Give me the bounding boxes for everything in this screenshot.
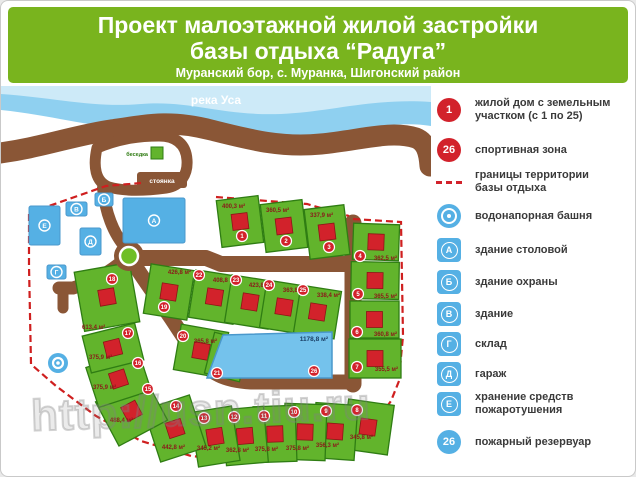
legend-label: здание столовой [475,244,568,257]
plot-number-18: 18 [109,277,116,283]
building-marker-icon: Е [435,390,463,418]
parking-label: стоянка [149,178,175,185]
house-2 [275,217,293,235]
plot-area-label-15: 488,4 м² [110,417,133,424]
plot-number-25: 25 [300,288,307,294]
plot-area-label-9: 356,3 м² [316,442,339,449]
house-8 [359,418,377,436]
legend-label: водонапорная башня [475,210,592,223]
house-10 [297,424,314,441]
plot-number-19: 19 [161,305,168,311]
legend-item-4: водонапорная башня [435,202,592,230]
house-5 [367,272,383,288]
legend-item-1: 1жилой дом с земельным участком (с 1 по … [435,96,610,124]
building-letter-Б: Б [102,197,107,204]
house-19 [160,283,178,301]
legend-item-9: Дгараж [435,360,506,388]
plot-number-20: 20 [180,334,187,340]
plot-area-label-6: 360,8 м² [374,331,397,338]
house-24 [275,298,293,316]
plot-area-label-14: 442,8 м² [162,444,185,451]
plot-area-label-12: 362,8 м² [226,447,249,454]
water-tower-icon [435,202,463,230]
dashed-boundary-icon [435,168,463,196]
plot-area-label-19: 426,8 м² [168,269,191,276]
plot-area-label-17: 375,9 м² [89,354,112,361]
gazebo [151,147,163,159]
page-subtitle: Муранский бор, с. Муранка, Шигонский рай… [8,66,628,80]
house-25 [308,303,326,321]
building-letter-Д: Д [88,239,93,246]
red-circle-symbol: 26 [437,138,461,162]
building-marker-icon: Б [435,268,463,296]
plot-area-label-8: 345,8 м² [350,434,373,441]
legend-item-2: 26спортивная зона [435,136,567,164]
blue-square-symbol: А [437,238,461,262]
legend-item-3: границы территории базы отдыха [435,168,589,196]
pond-badge-number: 26 [311,369,318,375]
house-22 [205,288,223,306]
plot-18 [74,263,140,332]
pond-area-label: 1178,8 м² [300,336,329,343]
page-title-line1: Проект малоэтажной жилой застройки [8,12,628,38]
plot-number-10: 10 [291,410,298,416]
plot-number-24: 24 [266,283,273,289]
map-legend: 1жилой дом с земельным участком (с 1 по … [431,86,636,477]
blue-square-symbol: Е [437,392,461,416]
blue-square-symbol: Г [437,332,461,356]
water-tower-dot [56,361,60,365]
building-marker-icon: А [435,236,463,264]
legend-item-10: Ехранение средств пожаротушения [435,390,573,418]
plot-area-label-25: 338,4 м² [317,292,340,299]
blue-square-symbol: Б [437,270,461,294]
plot-area-label-18: 613,4 м² [82,324,105,331]
plot-number-17: 17 [125,331,132,337]
house-4 [368,234,385,251]
plot-area-label-1: 400,3 м² [222,203,245,210]
roundabout-island [120,247,138,265]
plot-area-label-5: 365,5 м² [374,293,397,300]
legend-item-6: Бздание охраны [435,268,558,296]
legend-item-11: 26пожарный резервуар [435,428,591,456]
legend-label: границы территории базы отдыха [475,169,589,195]
building-marker-icon: Г [435,330,463,358]
plot-number-16: 16 [135,361,142,367]
legend-label: склад [475,338,507,351]
legend-item-8: Гсклад [435,330,507,358]
plot-number-22: 22 [196,273,203,279]
legend-item-7: Вздание [435,300,513,328]
legend-label: хранение средств пожаротушения [475,391,573,417]
plot-number-13: 13 [201,416,208,422]
road [137,258,353,264]
site-plan-map: 1178,8 м²261400,3 м²2360,5 м²3337,9 м²43… [1,86,431,477]
legend-label: здание [475,308,513,321]
building-marker-icon: Д [435,360,463,388]
plot-number-12: 12 [231,415,238,421]
house-3 [318,223,336,241]
house-1 [231,213,249,231]
red-marker-icon: 26 [435,136,463,164]
house-13 [206,427,224,445]
plot-area-label-16: 375,9 м² [93,384,116,391]
house-18 [98,288,117,307]
house-11 [267,426,284,443]
page-title-line2: базы отдыха “Радуга” [8,38,628,64]
plot-area-label-2: 360,5 м² [266,207,289,214]
road [1,124,430,166]
legend-label: гараж [475,368,506,381]
legend-label: пожарный резервуар [475,436,591,449]
house-12 [236,427,253,444]
gazebo-label: беседка [126,151,149,158]
plot-number-21: 21 [214,371,221,377]
legend-label: жилой дом с земельным участком (с 1 по 2… [475,97,610,123]
legend-label: здание охраны [475,276,558,289]
plot-area-label-11: 375,8 м² [255,446,278,453]
building-marker-icon: В [435,300,463,328]
legend-label: спортивная зона [475,144,567,157]
building-letter-В: В [74,206,79,213]
poster: Проект малоэтажной жилой застройки базы … [0,0,636,477]
plot-number-15: 15 [145,387,152,393]
red-circle-symbol: 1 [437,98,461,122]
building-letter-Е: Е [42,223,47,230]
plot-number-14: 14 [173,404,180,410]
plot-area-label-13: 345,2 м² [197,445,220,452]
plot-area-label-7: 355,5 м² [375,366,398,373]
river-label: река Уса [191,93,242,107]
legend-item-5: Аздание столовой [435,236,568,264]
plot-number-11: 11 [261,414,268,420]
house-23 [241,293,259,311]
plot-number-23: 23 [233,278,240,284]
blue-square-symbol: Д [437,362,461,386]
blue-square-symbol: В [437,302,461,326]
plot-area-label-4: 362,5 м² [374,255,397,262]
plot-area-label-3: 337,9 м² [310,212,333,219]
house-9 [326,423,343,440]
plot-area-label-10: 375,8 м² [286,445,309,452]
house-6 [367,312,383,328]
building-letter-А: А [152,218,157,225]
house-7 [367,351,383,367]
blue-marker-icon: 26 [435,428,463,456]
header-banner: Проект малоэтажной жилой застройки базы … [8,7,628,83]
building-letter-Г: Г [55,269,59,276]
red-marker-icon: 1 [435,96,463,124]
plot-area-label-20: 365,8 м² [194,338,217,345]
blue-circle-symbol: 26 [437,430,461,454]
